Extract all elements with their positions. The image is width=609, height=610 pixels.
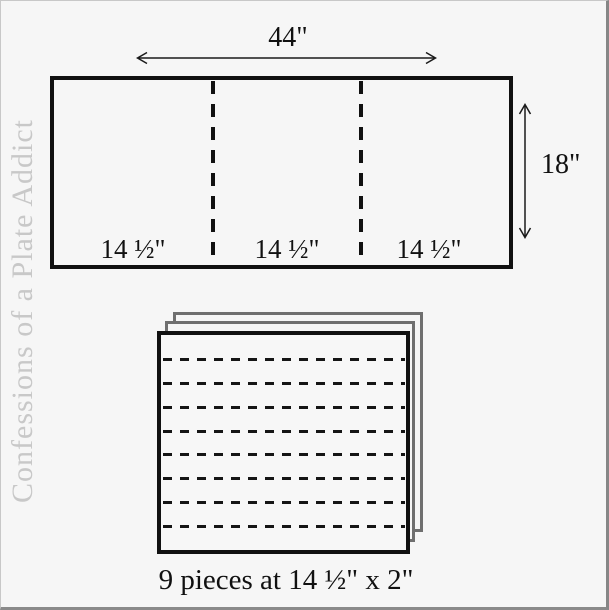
cut-line: [163, 382, 405, 385]
diagram-frame: Confessions of a Plate Addict 44" 14 ½" …: [0, 0, 609, 610]
pieces-caption: 9 pieces at 14 ½" x 2": [159, 564, 414, 597]
section-width-label: 14 ½": [396, 234, 461, 265]
fabric-width-label: 44": [268, 22, 307, 54]
width-dimension-arrow-icon: [135, 51, 438, 65]
stacked-sheet-front: [157, 331, 410, 554]
cut-line: [163, 525, 405, 528]
fold-line-right: [359, 81, 363, 265]
section-width-label: 14 ½": [254, 234, 319, 265]
cut-line: [163, 453, 405, 456]
cut-line: [163, 501, 405, 504]
cut-line: [163, 358, 405, 361]
fold-line-left: [211, 81, 215, 265]
section-width-label: 14 ½": [100, 234, 165, 265]
fabric-height-label: 18": [541, 149, 580, 181]
watermark-text: Confessions of a Plate Addict: [6, 119, 40, 503]
cut-line: [163, 477, 405, 480]
cut-line: [163, 406, 405, 409]
height-dimension-arrow-icon: [518, 102, 532, 240]
cut-line: [163, 430, 405, 433]
